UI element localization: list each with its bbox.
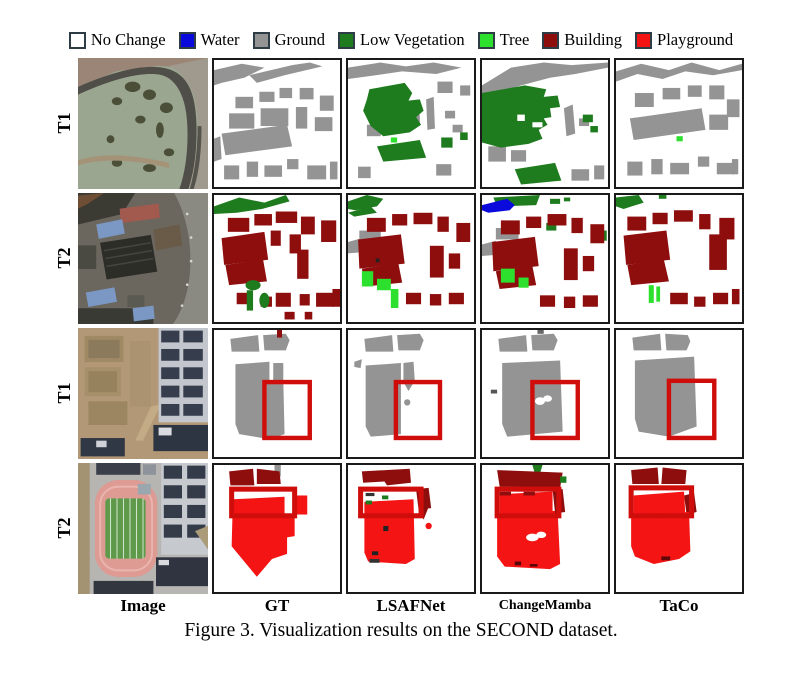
panel-t1b-changemamba xyxy=(480,328,610,459)
panel-t1b-image xyxy=(78,328,208,459)
column-label-image: Image xyxy=(78,596,208,616)
column-label-lsafnet: LSAFNet xyxy=(346,596,476,616)
column-label-taco: TaCo xyxy=(614,596,744,616)
satellite-image xyxy=(78,328,208,459)
panel-t2b-changemamba xyxy=(480,463,610,594)
segmentation-map xyxy=(616,330,742,457)
segmentation-map xyxy=(348,195,474,322)
low-vegetation-swatch xyxy=(338,32,355,49)
segmentation-map xyxy=(482,330,608,457)
legend-item-water: Water xyxy=(179,30,240,50)
row-label-t2-b: T2 xyxy=(53,508,75,548)
row-label-t2-a: T2 xyxy=(53,238,75,278)
legend-item-ground: Ground xyxy=(253,30,325,50)
panel-t1b-lsafnet xyxy=(346,328,476,459)
row-label-t1-a: T1 xyxy=(53,103,75,143)
playground-swatch xyxy=(635,32,652,49)
segmentation-map xyxy=(348,465,474,592)
panel-t2a-gt xyxy=(212,193,342,324)
segmentation-map xyxy=(214,465,340,592)
row-label-t1-b: T1 xyxy=(53,373,75,413)
satellite-image xyxy=(78,193,208,324)
legend-label: Tree xyxy=(500,30,530,50)
panel-t2b-lsafnet xyxy=(346,463,476,594)
building-swatch xyxy=(542,32,559,49)
segmentation-map xyxy=(214,60,340,187)
water-swatch xyxy=(179,32,196,49)
legend-label: Building xyxy=(564,30,622,50)
panel-t2b-gt xyxy=(212,463,342,594)
legend-item-tree: Tree xyxy=(478,30,530,50)
results-grid xyxy=(78,58,744,594)
highlight-box xyxy=(396,382,440,438)
panel-t2b-taco xyxy=(614,463,744,594)
legend-label: Ground xyxy=(275,30,325,50)
segmentation-map xyxy=(482,195,608,322)
panel-t1a-image xyxy=(78,58,208,189)
panel-t1b-gt xyxy=(212,328,342,459)
panel-t2a-image xyxy=(78,193,208,324)
panel-t2a-taco xyxy=(614,193,744,324)
panel-t1b-taco xyxy=(614,328,744,459)
satellite-image xyxy=(78,58,208,189)
segmentation-map xyxy=(214,195,340,322)
ground-swatch xyxy=(253,32,270,49)
legend-label: Low Vegetation xyxy=(360,30,465,50)
figure-caption: Figure 3. Visualization results on the S… xyxy=(0,620,802,642)
legend-item-no-change: No Change xyxy=(69,30,166,50)
segmentation-map xyxy=(616,195,742,322)
no-change-swatch xyxy=(69,32,86,49)
legend-item-building: Building xyxy=(542,30,622,50)
legend-item-low-vegetation: Low Vegetation xyxy=(338,30,465,50)
panel-t1a-taco xyxy=(614,58,744,189)
legend-label: No Change xyxy=(91,30,166,50)
panel-t1a-lsafnet xyxy=(346,58,476,189)
segmentation-map xyxy=(214,330,340,457)
panel-t2b-image xyxy=(78,463,208,594)
panel-t1a-changemamba xyxy=(480,58,610,189)
panel-t2a-lsafnet xyxy=(346,193,476,324)
segmentation-map xyxy=(348,60,474,187)
legend-item-playground: Playground xyxy=(635,30,733,50)
legend-label: Water xyxy=(201,30,240,50)
satellite-image xyxy=(78,463,208,594)
class-legend: No Change Water Ground Low Vegetation Tr… xyxy=(0,30,802,50)
segmentation-map xyxy=(616,60,742,187)
panel-t2a-changemamba xyxy=(480,193,610,324)
figure-page: No Change Water Ground Low Vegetation Tr… xyxy=(0,0,802,681)
segmentation-map xyxy=(482,465,608,592)
tree-swatch xyxy=(478,32,495,49)
segmentation-map xyxy=(482,60,608,187)
panel-t1a-gt xyxy=(212,58,342,189)
column-labels: Image GT LSAFNet ChangeMamba TaCo xyxy=(78,596,744,616)
column-label-gt: GT xyxy=(212,596,342,616)
segmentation-map xyxy=(348,330,474,457)
legend-label: Playground xyxy=(657,30,733,50)
column-label-changemamba: ChangeMamba xyxy=(480,596,610,616)
segmentation-map xyxy=(616,465,742,592)
